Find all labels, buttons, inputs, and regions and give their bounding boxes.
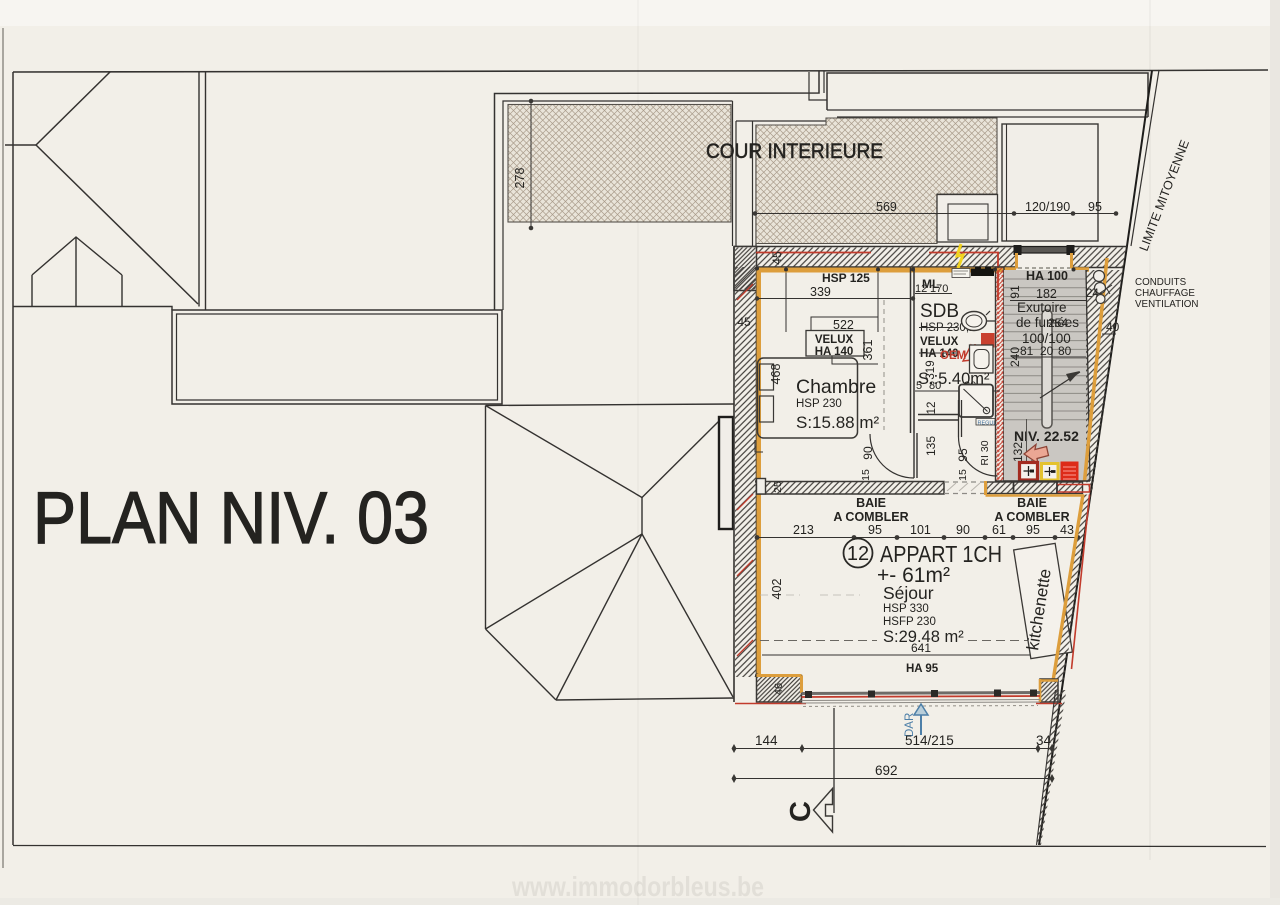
svg-text:80: 80 (929, 380, 941, 392)
svg-text:90: 90 (861, 446, 875, 460)
svg-text:240: 240 (1008, 347, 1022, 367)
svg-text:34: 34 (1036, 733, 1052, 748)
svg-text:40: 40 (1106, 320, 1120, 334)
svg-text:BAIE: BAIE (856, 496, 886, 510)
svg-text:A COMBLER: A COMBLER (994, 510, 1069, 524)
svg-text:5: 5 (916, 380, 922, 392)
svg-text:15: 15 (860, 469, 872, 481)
svg-text:132: 132 (1011, 442, 1025, 462)
svg-text:46: 46 (773, 683, 785, 695)
svg-text:514/215: 514/215 (905, 733, 954, 748)
svg-text:COUR INTERIEURE: COUR INTERIEURE (706, 140, 883, 163)
svg-text:HA 100: HA 100 (1026, 269, 1068, 283)
svg-text:Séjour: Séjour (883, 583, 934, 603)
svg-text:RI 30: RI 30 (979, 440, 991, 465)
svg-text:BAIE: BAIE (1017, 496, 1047, 510)
svg-text:PLAN NIV. 03: PLAN NIV. 03 (33, 478, 429, 559)
svg-text:91: 91 (1008, 285, 1022, 299)
svg-text:61: 61 (992, 523, 1006, 537)
svg-text:HA 140: HA 140 (815, 346, 854, 358)
svg-text:VELUX: VELUX (920, 336, 959, 348)
svg-text:VENTILATION: VENTILATION (1135, 299, 1199, 310)
svg-text:45: 45 (770, 251, 784, 265)
svg-text:HSP 125: HSP 125 (822, 271, 870, 285)
svg-text:HSFP 230: HSFP 230 (883, 616, 936, 628)
svg-text:Chambre: Chambre (796, 376, 876, 398)
svg-text:468: 468 (769, 364, 783, 385)
svg-text:25: 25 (772, 481, 784, 493)
svg-text:144: 144 (755, 733, 778, 748)
svg-text:339: 339 (810, 285, 831, 299)
svg-text:HSP 330: HSP 330 (883, 603, 929, 615)
svg-text:S:15.88 m²: S:15.88 m² (796, 413, 879, 432)
svg-text:SDB: SDB (920, 301, 959, 322)
svg-text:NIV. 22.52: NIV. 22.52 (1014, 428, 1079, 444)
svg-text:95: 95 (868, 523, 882, 537)
svg-text:VELUX: VELUX (815, 334, 854, 346)
svg-text:REGUL: REGUL (978, 420, 997, 426)
svg-text:170: 170 (930, 283, 948, 295)
svg-text:CHAUFFAGE: CHAUFFAGE (1135, 288, 1195, 299)
svg-text:OEM: OEM (940, 350, 966, 362)
svg-text:402: 402 (770, 579, 784, 600)
svg-text:95: 95 (1088, 200, 1102, 214)
svg-text:135: 135 (924, 436, 938, 456)
svg-text:43: 43 (1060, 523, 1074, 537)
svg-text:15: 15 (957, 469, 969, 481)
svg-text:20: 20 (1040, 344, 1054, 358)
svg-text:278: 278 (513, 168, 527, 189)
svg-text:C: C (785, 801, 817, 822)
svg-text:12: 12 (915, 283, 927, 295)
svg-text:101: 101 (910, 523, 931, 537)
svg-text:CONDUITS: CONDUITS (1135, 277, 1187, 288)
svg-text:HSP 230: HSP 230 (796, 398, 842, 410)
svg-text:Exutoire: Exutoire (1017, 300, 1067, 315)
svg-text:319: 319 (925, 360, 937, 379)
svg-text:HA 95: HA 95 (906, 663, 939, 675)
svg-text:80: 80 (1058, 344, 1072, 358)
svg-text:90: 90 (956, 523, 970, 537)
svg-text:12: 12 (926, 402, 938, 415)
svg-text:120/190: 120/190 (1025, 200, 1070, 214)
svg-text:24: 24 (1086, 288, 1099, 300)
svg-text:361: 361 (861, 340, 875, 361)
svg-text:95: 95 (1026, 523, 1040, 537)
svg-text:692: 692 (875, 763, 898, 778)
svg-text:569: 569 (876, 200, 897, 214)
svg-text:182: 182 (1036, 287, 1057, 301)
svg-text:12: 12 (847, 543, 869, 565)
svg-text:A COMBLER: A COMBLER (833, 510, 908, 524)
svg-text:641: 641 (911, 641, 931, 655)
svg-text:95: 95 (956, 448, 970, 462)
svg-text:45: 45 (737, 315, 751, 329)
svg-text:213: 213 (793, 523, 814, 537)
svg-text:81: 81 (1020, 344, 1034, 358)
